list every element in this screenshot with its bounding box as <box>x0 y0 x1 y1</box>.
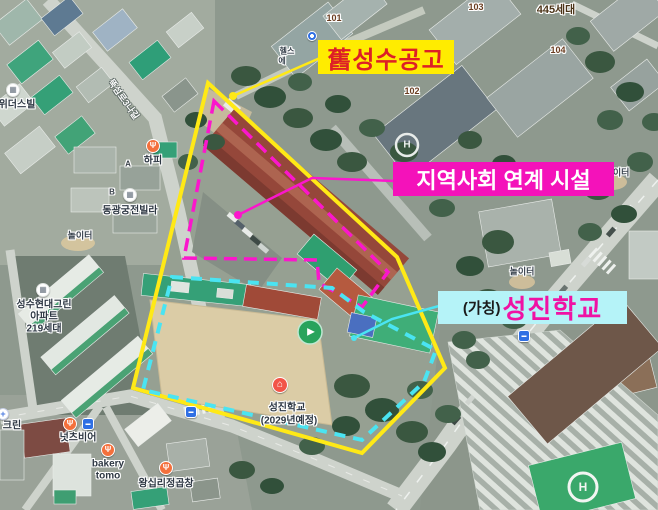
community-facility-callout: 지역사회 연계 시설 <box>393 162 614 196</box>
community-facility-callout-text: 지역사회 연계 시설 <box>416 163 590 195</box>
panorama-play-icon: ▶ <box>307 327 315 338</box>
panorama-marker: ▶ <box>298 320 322 344</box>
school-callout: (가칭) 성진학교 <box>438 291 627 324</box>
old-factory-callout-text: 舊성수공고 <box>327 40 444 75</box>
callout-leader-dot <box>351 335 357 341</box>
satellite-map: H H ▶ 101103445세대104102헬스에위더스빌뚝섬로3나길하피AB… <box>0 0 658 510</box>
school-callout-prefix: (가칭) <box>463 297 501 318</box>
satellite-imagery: H H ▶ <box>0 0 658 510</box>
callout-leader-dot <box>234 211 242 219</box>
old-factory-callout: 舊성수공고 <box>318 40 454 74</box>
helipad-letter: H <box>579 480 588 494</box>
helipad-letter: H <box>403 140 410 151</box>
school-callout-name: 성진학교 <box>502 289 602 326</box>
callout-leader-dot <box>229 92 237 100</box>
